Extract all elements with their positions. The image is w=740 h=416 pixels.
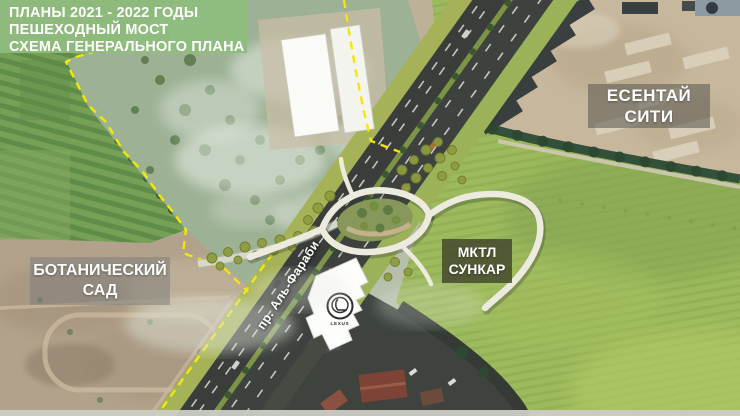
banner-line-2: ПЕШЕХОДНЫЙ МОСТ <box>9 22 238 39</box>
barn-building <box>358 369 407 402</box>
label-esentai-city: ЕСЕНТАЙ СИТИ <box>588 84 710 128</box>
svg-text:LEXUS: LEXUS <box>330 321 349 326</box>
aerial-map-image: LEXUS <box>0 0 740 416</box>
label-botanical-garden: БОТАНИЧЕСКИЙ САД <box>30 257 170 305</box>
slide: LEXUS ПЛАНЫ 2021 - 2022 ГОДЫ ПЕШЕХОДНЫЙ … <box>0 0 740 416</box>
banner-line-1: ПЛАНЫ 2021 - 2022 ГОДЫ <box>9 5 238 22</box>
plan-title-banner: ПЛАНЫ 2021 - 2022 ГОДЫ ПЕШЕХОДНЫЙ МОСТ С… <box>0 0 247 53</box>
bottom-edge-strip <box>0 410 740 416</box>
label-mktl-sunkar: МКТЛ СУНКАР <box>442 239 512 283</box>
banner-line-3: СХЕМА ГЕНЕРАЛЬНОГО ПЛАНА <box>9 39 238 56</box>
